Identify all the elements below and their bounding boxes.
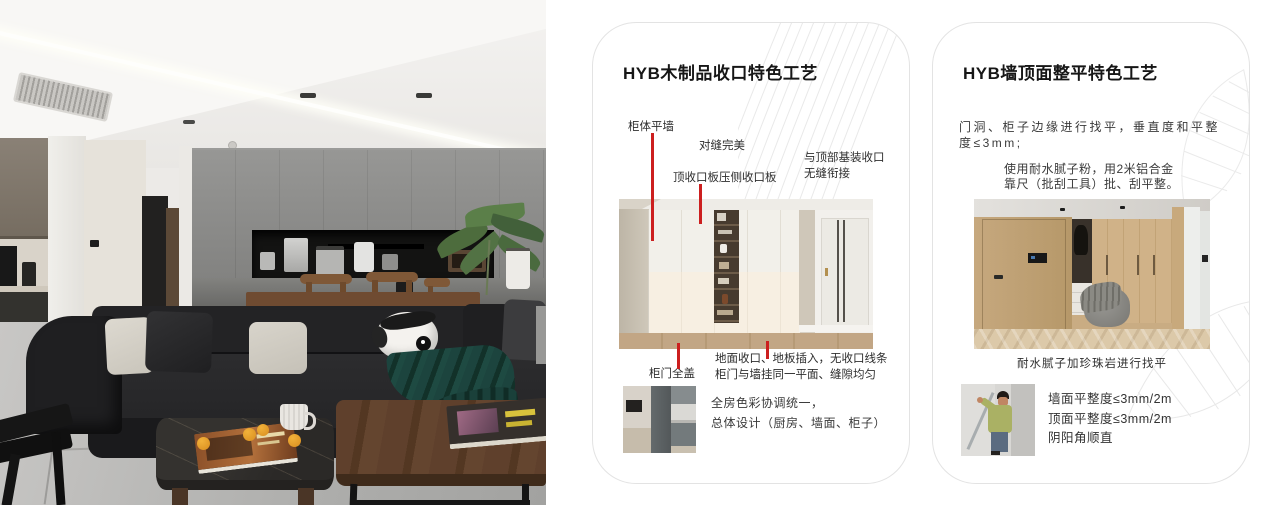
magazine-cover-art bbox=[457, 408, 499, 435]
interior-thumbnail bbox=[623, 386, 696, 453]
text-line: 墙面平整度≤3mm/2m bbox=[1048, 390, 1172, 410]
magazine-text bbox=[506, 420, 532, 427]
text-line: 柜门与墙挂同一平面、缝隙均匀 bbox=[715, 368, 888, 384]
shelf-item bbox=[717, 310, 733, 315]
wood-door-wall bbox=[974, 217, 1072, 331]
orange-fruit bbox=[288, 434, 301, 447]
wall-craft-card: HYB墙顶面整平特色工艺 门洞、柜子边缘进行找平，垂直度和平整 度≤3mm; 使… bbox=[932, 22, 1250, 484]
leveling-paragraph: 门洞、柜子边缘进行找平，垂直度和平整 度≤3mm; bbox=[959, 120, 1220, 151]
cloakroom-render bbox=[974, 199, 1210, 349]
corridor-wall bbox=[1200, 211, 1210, 333]
door-sign bbox=[1202, 255, 1208, 262]
wardrobe-handle bbox=[1137, 255, 1139, 275]
shelf-item bbox=[719, 262, 729, 269]
side-wall bbox=[619, 209, 649, 337]
page: HYB木制品收口特色工艺 柜体平墙 对缝完美 顶收口板压侧收口板 与顶部基装收口… bbox=[0, 0, 1280, 505]
baseboard bbox=[799, 325, 873, 332]
ceiling-vent-slot bbox=[300, 93, 316, 98]
wall-gap bbox=[799, 210, 815, 332]
shelf-item bbox=[718, 230, 732, 234]
text-line: 使用耐水腻子粉，用2米铝合金 bbox=[1004, 162, 1179, 177]
interior-door bbox=[815, 210, 873, 335]
wood-floor bbox=[974, 329, 1210, 349]
room-floor bbox=[623, 428, 651, 453]
throw-pillow bbox=[145, 311, 213, 373]
text-line: 总体设计（厨房、墙面、柜子） bbox=[711, 414, 886, 434]
text-line: 顶面平整度≤3mm/2m bbox=[1048, 410, 1172, 430]
back-room bbox=[623, 386, 651, 453]
orange-fruit bbox=[257, 424, 269, 436]
leader-line bbox=[677, 343, 680, 369]
kitchen-zone bbox=[671, 386, 696, 453]
ceiling-spotlight bbox=[1060, 208, 1065, 211]
display-shelf bbox=[714, 210, 739, 323]
orange-fruit bbox=[197, 437, 210, 450]
throw-pillow bbox=[249, 322, 307, 374]
magazine-text bbox=[257, 440, 279, 446]
magazine-title bbox=[505, 409, 535, 418]
callout-door-cover: 柜门全盖 bbox=[649, 365, 695, 381]
gray-cabinet bbox=[651, 386, 671, 453]
open-door bbox=[1172, 207, 1210, 335]
door-jamb bbox=[1172, 207, 1184, 331]
leader-line bbox=[651, 133, 654, 241]
throw-pillow bbox=[536, 306, 546, 364]
text-line: 靠尺（批刮工具）批、刮平整。 bbox=[1004, 177, 1179, 192]
niche-item bbox=[382, 254, 398, 270]
kettle bbox=[260, 252, 275, 270]
white-door bbox=[1184, 207, 1200, 333]
kitchen-upper-cabinet bbox=[0, 138, 54, 239]
panel-light bbox=[1031, 256, 1035, 259]
worker-hand bbox=[977, 397, 983, 403]
door-handle bbox=[994, 275, 1003, 279]
door-control-panel bbox=[1028, 253, 1047, 263]
text-line: 地面收口、地板插入，无收口线条 bbox=[715, 352, 888, 368]
worker-thumbnail bbox=[961, 384, 1035, 456]
capsule-machine bbox=[354, 242, 374, 272]
card-title: HYB墙顶面整平特色工艺 bbox=[963, 59, 1158, 84]
wall-column bbox=[48, 136, 86, 334]
putty-paragraph: 使用耐水腻子粉，用2米铝合金 靠尺（批刮工具）批、刮平整。 bbox=[1004, 162, 1179, 191]
panda-pupil bbox=[421, 340, 425, 344]
coffee-grinder bbox=[316, 246, 344, 276]
text-line: 与顶部基装收口 bbox=[804, 150, 885, 166]
worker-shirt bbox=[988, 405, 1012, 433]
wardrobe-render bbox=[619, 199, 873, 349]
magazine-stack bbox=[446, 398, 546, 450]
text-line: 全房色彩协调统一， bbox=[711, 394, 886, 414]
wardrobe-handle bbox=[1106, 255, 1108, 275]
wood-craft-card: HYB木制品收口特色工艺 柜体平墙 对缝完美 顶收口板压侧收口板 与顶部基装收口… bbox=[592, 22, 910, 484]
worker-shoe bbox=[991, 451, 1000, 455]
shelf-item bbox=[717, 213, 726, 221]
shelf-item bbox=[722, 294, 728, 304]
render-caption: 耐水腻子加珍珠岩进行找平 bbox=[974, 355, 1210, 371]
design-note: 全房色彩协调统一， 总体设计（厨房、墙面、柜子） bbox=[711, 394, 886, 433]
callout-top-joint: 与顶部基装收口 无缝衔接 bbox=[804, 150, 885, 182]
orange-fruit bbox=[243, 428, 256, 441]
table-leg bbox=[172, 488, 188, 505]
kitchen-floor bbox=[671, 446, 696, 453]
ceiling-spotlight bbox=[1120, 206, 1125, 209]
door-stripes bbox=[837, 220, 849, 322]
table-leg bbox=[298, 488, 314, 505]
light-switch bbox=[90, 240, 99, 247]
shaded-wall bbox=[1011, 384, 1035, 456]
kitchen-item bbox=[22, 262, 36, 288]
text-line: 无缝衔接 bbox=[804, 166, 885, 182]
card-title: HYB木制品收口特色工艺 bbox=[623, 59, 818, 84]
text-line: 阴阳角顺直 bbox=[1048, 429, 1172, 449]
leader-line bbox=[766, 341, 769, 359]
shelf-item bbox=[718, 278, 729, 284]
text-line: 度≤3mm; bbox=[959, 136, 1220, 152]
callout-floor-closing: 地面收口、地板插入，无收口线条 柜门与墙挂同一平面、缝隙均匀 bbox=[715, 352, 888, 383]
coffee-machine bbox=[0, 246, 17, 288]
ceiling-vent-slot bbox=[416, 93, 432, 98]
lounge-chair bbox=[0, 402, 84, 505]
table-stretcher bbox=[350, 500, 530, 505]
wardrobe-handle bbox=[1153, 255, 1155, 275]
plant-vase bbox=[506, 248, 530, 289]
kitchen-lower-cabinet bbox=[671, 423, 696, 446]
worker-pants bbox=[991, 432, 1008, 452]
mug bbox=[280, 404, 308, 430]
living-room-photo bbox=[0, 0, 546, 505]
text-line: 门洞、柜子边缘进行找平，垂直度和平整 bbox=[959, 120, 1220, 136]
espresso-machine bbox=[284, 238, 308, 272]
ceiling-vent-slot bbox=[183, 120, 195, 124]
shelf-item bbox=[720, 244, 727, 253]
kitchen-backsplash bbox=[671, 404, 696, 420]
wood-floor bbox=[619, 333, 873, 349]
flatness-specs: 墙面平整度≤3mm/2m 顶面平整度≤3mm/2m 阴阳角顺直 bbox=[1048, 390, 1172, 449]
tv-screen bbox=[626, 400, 642, 412]
callout-cabinet-wall: 柜体平墙 bbox=[628, 118, 674, 134]
leader-line bbox=[699, 184, 702, 224]
hanging-coat bbox=[1074, 225, 1088, 255]
hallway-wall bbox=[84, 140, 146, 334]
callout-seam: 对缝完美 bbox=[699, 137, 745, 153]
door-knob bbox=[825, 268, 828, 276]
callout-top-board: 顶收口板压侧收口板 bbox=[673, 169, 777, 185]
